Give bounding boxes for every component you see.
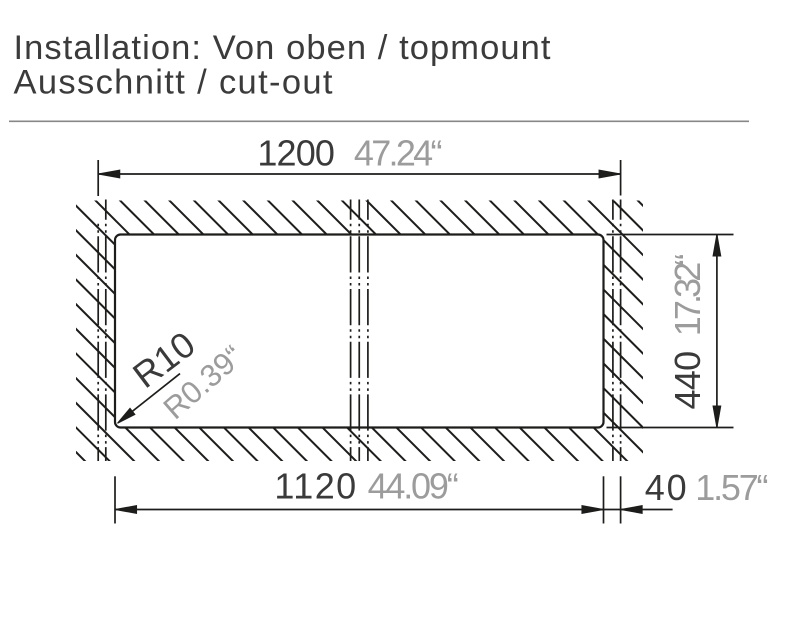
svg-text:40: 40 bbox=[645, 467, 687, 508]
svg-text:17.32“: 17.32“ bbox=[667, 254, 708, 337]
svg-text:47.24“: 47.24“ bbox=[354, 133, 443, 174]
svg-text:Ausschnitt / cut-out: Ausschnitt / cut-out bbox=[14, 64, 333, 102]
svg-text:440: 440 bbox=[667, 351, 708, 410]
svg-text:44.09“: 44.09“ bbox=[368, 466, 459, 507]
svg-text:1200: 1200 bbox=[257, 133, 335, 174]
svg-text:1.57“: 1.57“ bbox=[695, 467, 768, 508]
svg-text:Installation: Von oben / topmo: Installation: Von oben / topmount bbox=[14, 29, 551, 67]
svg-text:1120: 1120 bbox=[274, 466, 356, 507]
